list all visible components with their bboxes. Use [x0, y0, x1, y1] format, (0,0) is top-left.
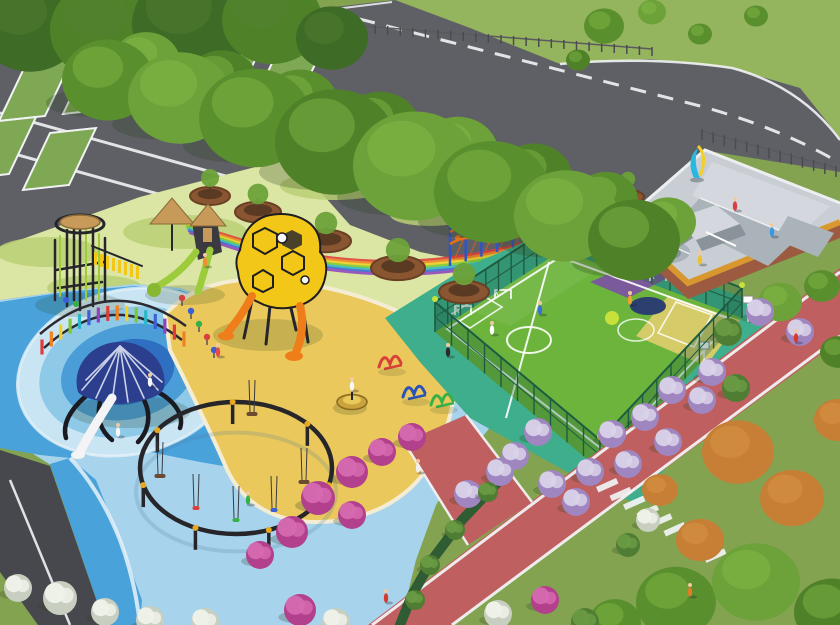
tree-highlight — [710, 426, 750, 458]
person-body — [416, 463, 420, 473]
tube-slide-exit — [71, 451, 85, 459]
swing-clamp — [266, 527, 272, 533]
bush-bloom — [644, 409, 657, 422]
person-body — [148, 377, 152, 387]
bush-bloom — [667, 434, 680, 447]
person-head — [770, 223, 774, 227]
person-body — [203, 257, 207, 267]
bush-bloom — [799, 324, 812, 337]
swing-seat — [271, 508, 278, 512]
tree-highlight — [212, 77, 274, 127]
tree-highlight — [682, 522, 708, 544]
cabin-panel — [203, 228, 212, 242]
spring-rider — [204, 334, 210, 340]
person-head — [538, 301, 542, 305]
gym-shadow — [402, 398, 430, 406]
tree-highlight — [767, 475, 802, 504]
bush-bloom — [611, 426, 624, 439]
bush-bloom — [711, 364, 724, 377]
swing-clamp — [140, 482, 146, 488]
person-body — [116, 427, 120, 437]
planter-tree — [201, 169, 219, 187]
person-body — [246, 495, 250, 505]
planter-tree — [386, 238, 410, 262]
tree-highlight — [641, 2, 656, 15]
person-body — [628, 295, 632, 305]
swing-seat — [299, 480, 310, 484]
person-head — [116, 423, 120, 427]
person-head — [628, 291, 632, 295]
bush-bloom — [499, 464, 512, 477]
bush-bloom — [727, 324, 740, 337]
bush-bloom — [259, 547, 272, 560]
scene-canvas — [0, 0, 840, 625]
person-body — [216, 347, 220, 357]
bush-bloom — [575, 494, 588, 507]
tree-highlight — [304, 12, 344, 44]
bush-bloom — [537, 424, 550, 437]
bush-bloom — [290, 522, 304, 536]
person-body — [446, 347, 450, 357]
tree-highlight — [645, 573, 689, 609]
gym-shadow — [378, 368, 406, 376]
person-head — [698, 251, 702, 255]
court-spot — [605, 311, 619, 325]
tree-highlight — [599, 206, 650, 247]
spring-rider — [179, 295, 185, 301]
person-body — [490, 325, 494, 335]
person-head — [794, 329, 798, 333]
bush-bloom — [350, 462, 364, 476]
bush-bloom — [544, 592, 557, 605]
bush-bloom — [589, 464, 602, 477]
bush-bloom — [17, 580, 30, 593]
tree-highlight — [589, 11, 611, 29]
person-head — [350, 377, 354, 381]
bush-bloom — [627, 538, 638, 549]
swing-seat — [233, 518, 240, 522]
bush-bloom — [701, 392, 714, 405]
bush-bloom — [627, 456, 640, 469]
bush-bloom — [487, 486, 496, 495]
tree-highlight — [569, 51, 582, 62]
person-body — [538, 305, 542, 315]
tree-highlight — [367, 121, 435, 177]
planter-tree — [315, 212, 338, 235]
porthole — [301, 276, 309, 284]
swing-clamp — [230, 399, 236, 405]
person-head — [148, 373, 152, 377]
slide-tube-exit — [147, 283, 161, 297]
bush-bloom — [104, 604, 117, 617]
bush-bloom — [514, 448, 527, 461]
person-body — [733, 201, 737, 211]
spring-rider — [196, 321, 202, 327]
tree-highlight — [140, 60, 197, 107]
gym-shadow — [430, 406, 458, 414]
sculpture-shadow — [690, 178, 704, 183]
crow-nest-floor — [60, 215, 100, 229]
tree-highlight — [747, 7, 760, 18]
person-head — [203, 253, 207, 257]
tree-highlight — [289, 98, 355, 152]
base-pod — [63, 297, 69, 303]
tree-highlight — [691, 25, 704, 36]
bush-bloom — [759, 304, 772, 317]
base-pod — [73, 301, 79, 307]
swing-seat — [193, 506, 200, 510]
bush-bloom — [316, 488, 331, 503]
person-head — [688, 583, 692, 587]
bush-bloom — [414, 594, 423, 603]
bush-bloom — [735, 380, 748, 393]
bush-bloom — [551, 476, 564, 489]
fence-decoration — [432, 296, 438, 302]
person-head — [733, 197, 737, 201]
swing-seat — [247, 412, 258, 416]
bush-bloom — [671, 382, 684, 395]
person-head — [246, 491, 250, 495]
person-body — [698, 255, 702, 265]
tree-highlight — [646, 477, 666, 493]
playground-park-render — [0, 0, 840, 625]
person-body — [688, 587, 692, 597]
person-body — [350, 381, 354, 391]
bush-bloom — [58, 588, 73, 603]
swing-seat — [155, 474, 166, 478]
bush-bloom — [497, 606, 510, 619]
person-head — [446, 343, 450, 347]
tree-highlight — [526, 178, 583, 225]
bush-bloom — [454, 524, 463, 533]
bush-bloom — [351, 507, 364, 520]
tree-highlight — [73, 46, 124, 87]
planter-tree — [453, 263, 476, 286]
bush-bloom — [411, 429, 424, 442]
person-body — [384, 593, 388, 603]
swing-clamp — [154, 427, 160, 433]
bush-bloom — [647, 513, 658, 524]
spring-rider — [188, 308, 194, 314]
bush-bloom — [381, 444, 394, 457]
fence-decoration — [739, 282, 745, 288]
bush-bloom — [298, 600, 312, 614]
orange-slide-exit — [285, 351, 303, 361]
bush-bloom — [149, 612, 162, 625]
person-head — [490, 321, 494, 325]
tree-highlight — [722, 550, 770, 590]
orange-slide-2-exit — [218, 332, 234, 341]
swing-clamp — [192, 525, 198, 531]
tree-highlight — [447, 150, 511, 202]
bush-bloom — [429, 559, 438, 568]
person-body — [794, 333, 798, 343]
person-head — [216, 343, 220, 347]
person-head — [384, 589, 388, 593]
swing-clamp — [304, 421, 310, 427]
porthole — [277, 233, 287, 243]
person-body — [770, 227, 774, 237]
planter-tree — [248, 184, 269, 205]
person-head — [416, 459, 420, 463]
tree-highlight — [808, 273, 828, 289]
